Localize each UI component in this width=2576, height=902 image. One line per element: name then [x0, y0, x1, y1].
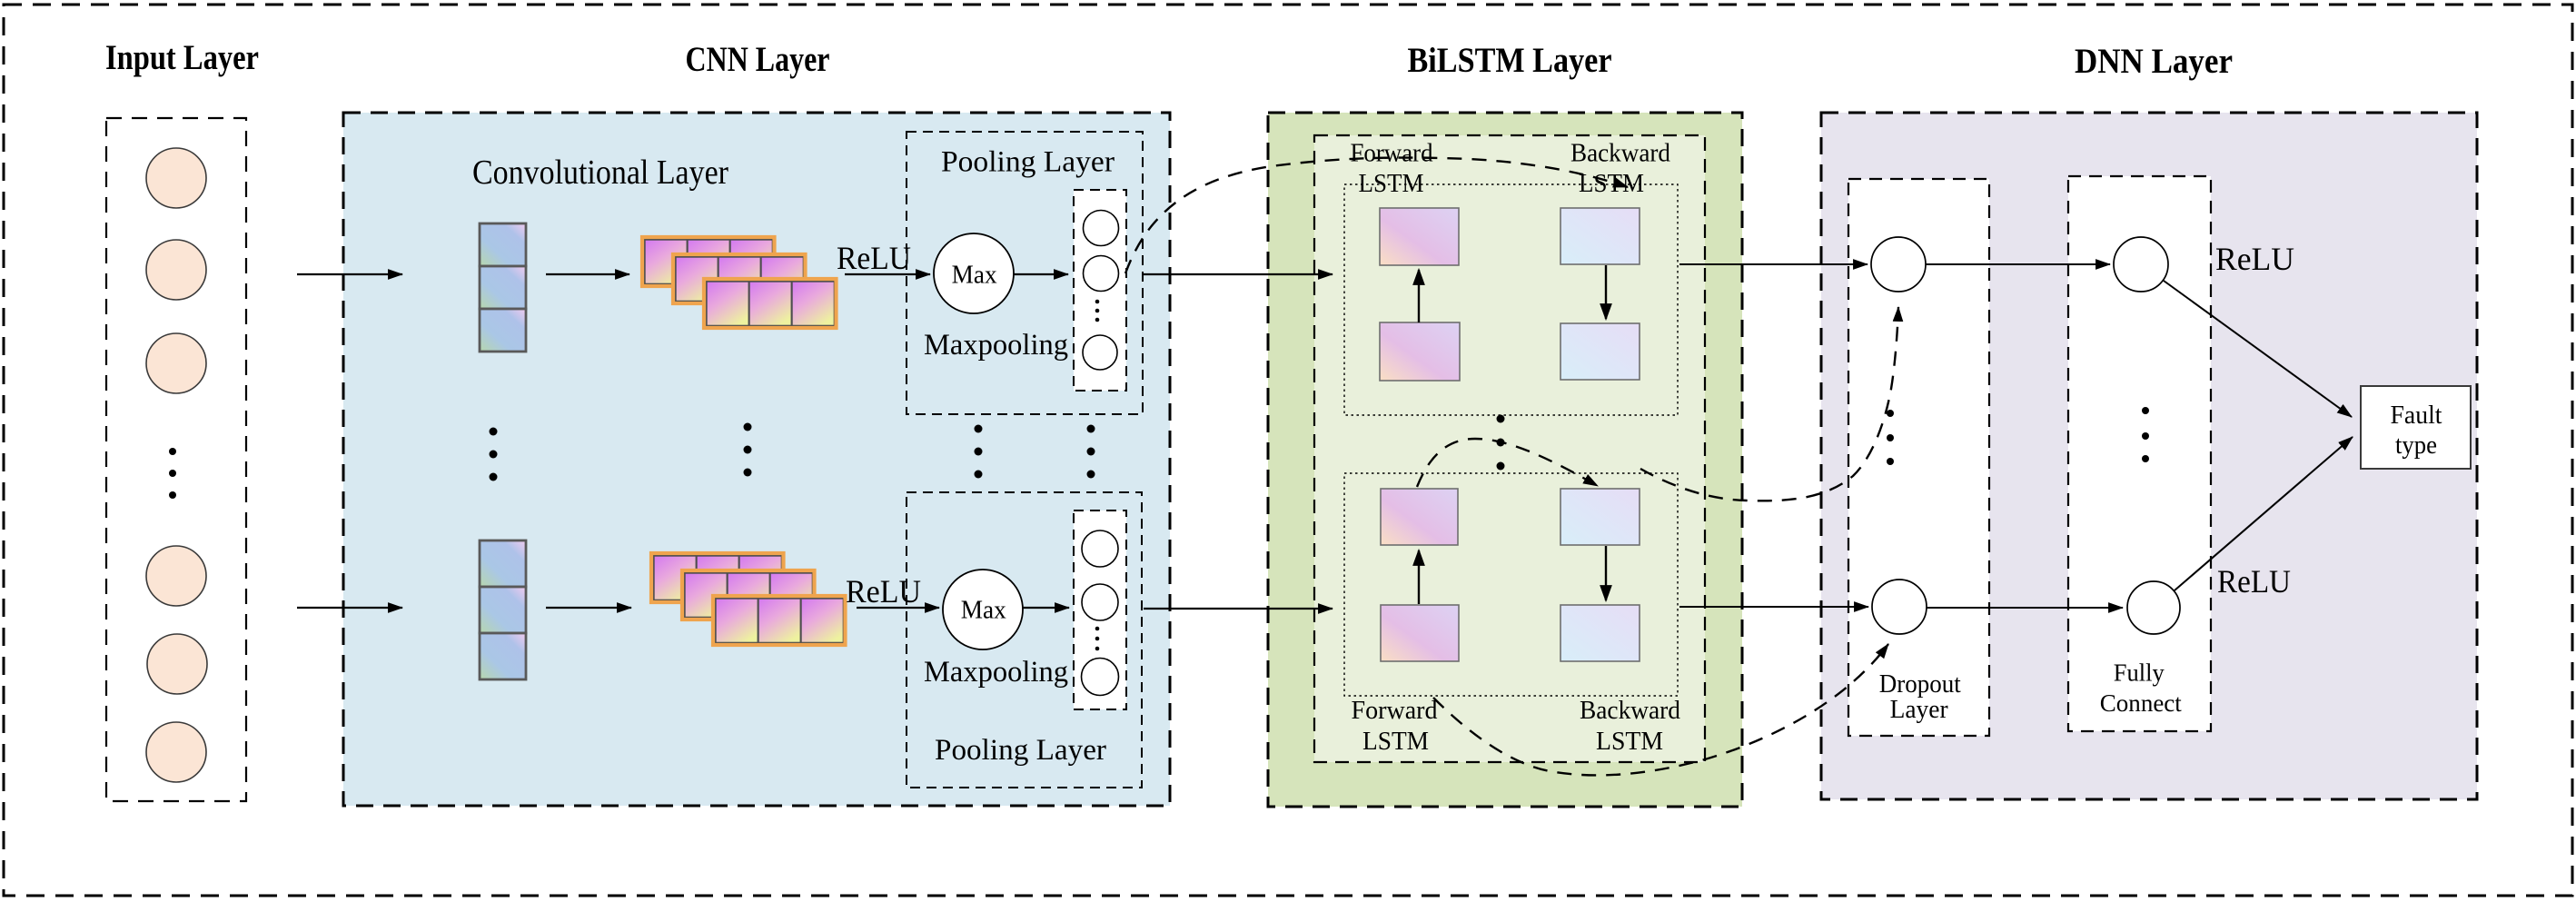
- svg-text:Fully: Fully: [2114, 659, 2165, 687]
- svg-text:LSTM: LSTM: [1359, 170, 1424, 198]
- svg-text:ReLU: ReLU: [846, 573, 921, 610]
- svg-text:CNN Layer: CNN Layer: [686, 40, 830, 79]
- svg-text:Maxpooling: Maxpooling: [924, 329, 1068, 362]
- svg-text:LSTM: LSTM: [1579, 170, 1644, 198]
- svg-text:ReLU: ReLU: [2215, 241, 2294, 277]
- svg-text:LSTM: LSTM: [1362, 728, 1429, 756]
- svg-text:Input Layer: Input Layer: [105, 38, 259, 77]
- svg-text:BiLSTM Layer: BiLSTM Layer: [1408, 41, 1612, 80]
- svg-text:Max: Max: [952, 262, 997, 290]
- svg-text:ReLU: ReLU: [837, 240, 911, 276]
- svg-text:Fault: Fault: [2391, 401, 2442, 430]
- svg-text:type: type: [2395, 431, 2437, 460]
- svg-text:Layer: Layer: [1890, 696, 1949, 724]
- svg-text:Convolutional Layer: Convolutional Layer: [472, 154, 728, 192]
- svg-text:Forward: Forward: [1351, 140, 1433, 168]
- svg-text:Forward: Forward: [1352, 697, 1438, 725]
- svg-text:Pooling Layer: Pooling Layer: [935, 734, 1106, 767]
- svg-text:Backward: Backward: [1570, 140, 1670, 168]
- svg-text:Pooling Layer: Pooling Layer: [941, 146, 1115, 179]
- svg-text:Max: Max: [961, 597, 1006, 625]
- svg-text:Backward: Backward: [1580, 697, 1680, 725]
- svg-text:ReLU: ReLU: [2217, 563, 2291, 600]
- svg-text:DNN Layer: DNN Layer: [2075, 42, 2233, 81]
- svg-text:LSTM: LSTM: [1596, 728, 1663, 756]
- svg-text:Dropout: Dropout: [1879, 670, 1961, 699]
- svg-text:Maxpooling: Maxpooling: [924, 656, 1068, 689]
- svg-text:Connect: Connect: [2100, 689, 2182, 717]
